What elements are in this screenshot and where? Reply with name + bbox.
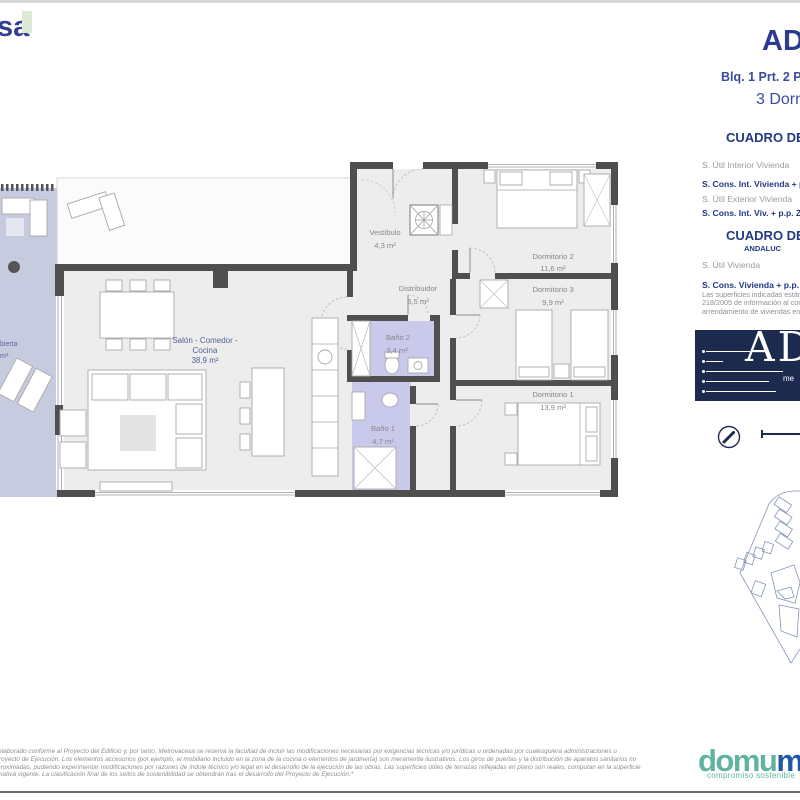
- surface-table-1-title: CUADRO DE S: [726, 130, 800, 145]
- sink: [352, 392, 365, 420]
- logo-dot-icon: [702, 390, 705, 393]
- disclaimer: ido elaborado conforme al Proyecto del E…: [0, 748, 700, 779]
- surface-table-2-note: Las superficies indicadas están 218/2005…: [702, 291, 800, 316]
- project-logo-letters: AD: [745, 330, 800, 371]
- disclaimer-line: ido elaborado conforme al Proyecto del E…: [0, 748, 700, 756]
- room-area: 4,3 m²: [374, 241, 396, 250]
- nightstand: [505, 453, 517, 465]
- armchair: [60, 442, 86, 468]
- room-label: Vestíbulo: [369, 228, 400, 237]
- room-area: 11,6 m²: [540, 264, 566, 273]
- note-line: arrendamiento de viviendas en: [702, 308, 800, 316]
- disclaimer-line: normativa vigente. La clasificación fina…: [0, 771, 700, 779]
- logo-line: [706, 381, 769, 382]
- salon-label: Cocina: [193, 346, 218, 355]
- shaft-symbol: [410, 205, 452, 235]
- logo-dot-icon: [702, 370, 705, 373]
- room-label: Dormitorio 1: [532, 390, 573, 399]
- salon-area: 38,9 m²: [191, 356, 218, 365]
- logo-dot-icon: [702, 350, 705, 353]
- outdoor-sofa: [30, 200, 47, 236]
- armchair: [60, 410, 86, 436]
- unit-line: Blq. 1 Prt. 2 P: [721, 70, 800, 84]
- scale-bar: [762, 433, 800, 435]
- bottom-rule: [0, 791, 800, 793]
- terrace-column: [8, 261, 20, 273]
- toilet: [382, 393, 398, 407]
- surface-table-1-row: S. Cons. Int. Vivienda + p.p. Z: [702, 179, 800, 189]
- room-area: 13,9 m²: [540, 403, 566, 412]
- nightstand: [554, 364, 569, 378]
- disclaimer-line: al Proyecto de Ejecución. Los elementos …: [0, 756, 700, 764]
- note-line: 218/2005 de información al con: [702, 299, 800, 307]
- note-line: Las superficies indicadas están: [702, 291, 800, 299]
- surface-table-2-region: ANDALUC: [744, 244, 781, 253]
- kitchen-counter: [312, 318, 338, 476]
- salon-label: Salón - Comedor -: [172, 336, 238, 345]
- room-area: 6,5 m²: [407, 297, 429, 306]
- room-label: Dormitorio 2: [532, 252, 573, 261]
- kitchen-island: [252, 368, 284, 456]
- page-top-strip: [0, 0, 800, 3]
- surface-table-1-row: S. Útil Exterior Vivienda: [702, 194, 792, 204]
- domum-tagline: compromiso sostenible: [707, 771, 795, 780]
- logo-line: [706, 371, 783, 372]
- logo-dot-icon: [702, 360, 705, 363]
- surface-table-2-title: CUADRO DE S: [726, 228, 800, 243]
- nightstand: [505, 403, 517, 415]
- logo-line: [706, 361, 723, 362]
- bedrooms-line: 3 Dorm: [756, 91, 800, 109]
- logo-dot-icon: [702, 380, 705, 383]
- surface-table-1-row: S. Útil Interior Vivienda: [702, 160, 789, 170]
- open-terrace-area: [57, 178, 355, 268]
- project-logo-box: AD me: [695, 330, 800, 401]
- terrace-label-partial: m²: [0, 353, 9, 360]
- brand-square-icon: [22, 11, 32, 33]
- room-label: Baño 2: [386, 333, 410, 342]
- brochure-page: { "header": { "brand_partial": "sa", "pr…: [0, 0, 800, 800]
- compass-icon: [716, 424, 742, 450]
- room-area: 4,7 m²: [372, 437, 394, 446]
- disclaimer-line: n aproximadas, pudiendo experimentar mod…: [0, 764, 700, 772]
- toilet: [385, 356, 399, 374]
- sink: [408, 358, 428, 373]
- scale-bar-tick: [761, 430, 763, 438]
- room-label: Dormitorio 3: [532, 285, 573, 294]
- outdoor-sofa: [2, 198, 34, 214]
- logo-line: [706, 351, 750, 352]
- logo-line: [706, 391, 776, 392]
- terrace-label-partial: bierta: [0, 341, 18, 348]
- project-title: ADA: [762, 25, 800, 58]
- surface-table-2-row: S. Útil Vivienda: [702, 260, 760, 270]
- surface-table-1-row: S. Cons. Int. Viv. + p.p. ZZCC: [702, 208, 800, 218]
- tv-bench: [100, 482, 172, 491]
- room-area: 9,9 m²: [542, 298, 564, 307]
- dining-table: [100, 292, 174, 338]
- project-logo-small-text: me: [783, 374, 794, 383]
- surface-table-2-row: S. Cons. Vivienda + p.p. ZZ.C: [702, 280, 800, 290]
- room-area: 3,4 m²: [386, 346, 408, 355]
- room-label: Distribuidor: [399, 284, 438, 293]
- room-label: Baño 1: [371, 424, 395, 433]
- floor-plan: Vestíbulo 4,3 m² Distribuidor 6,5 m² Dor…: [0, 160, 640, 505]
- site-plan-map: [733, 487, 800, 667]
